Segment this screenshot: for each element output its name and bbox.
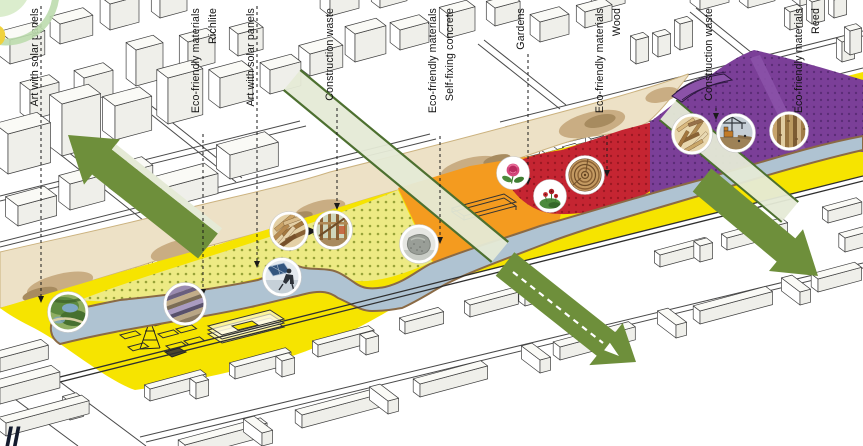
svg-text:Construction waste: Construction waste bbox=[703, 8, 715, 101]
masterplan-canvas: Art with solar panels Eco-friendly mater… bbox=[0, 0, 863, 446]
watermark-mark: ll bbox=[5, 422, 21, 446]
svg-text:Gardens: Gardens bbox=[515, 8, 527, 50]
svg-text:Art with solar panels: Art with solar panels bbox=[29, 8, 41, 107]
inset-timber-frame bbox=[313, 210, 353, 250]
svg-text:Self-fixing concrete: Self-fixing concrete bbox=[444, 8, 456, 101]
inset-person-solar-panel bbox=[262, 257, 302, 297]
inset-park-landscape bbox=[47, 292, 89, 333]
svg-text:Construction waste: Construction waste bbox=[324, 8, 336, 101]
svg-text:Art with solar panels: Art with solar panels bbox=[245, 8, 257, 107]
inset-wood-scraps bbox=[269, 211, 309, 251]
callout-construction-waste-1: Construction waste bbox=[324, 8, 336, 101]
callout-gardens: Gardens bbox=[515, 8, 527, 50]
masterplan-diagram: Art with solar panels Eco-friendly mater… bbox=[0, 0, 863, 446]
svg-text:Eco-friendly materials: Eco-friendly materials bbox=[594, 8, 606, 113]
inset-garden-flowers bbox=[534, 180, 567, 213]
callout-construction-waste-2: Construction waste bbox=[703, 8, 715, 101]
svg-text:Richlite: Richlite bbox=[207, 8, 219, 44]
inset-self-fixing-concrete bbox=[399, 224, 439, 264]
callout-art-with-solar-panels-1: Art with solar panels bbox=[29, 8, 41, 107]
inset-construction-site bbox=[716, 113, 756, 153]
inset-rose bbox=[497, 157, 530, 190]
callout-art-with-solar-panels-2: Art with solar panels bbox=[245, 8, 257, 107]
svg-text:Eco-friendly materials: Eco-friendly materials bbox=[793, 8, 805, 113]
inset-wood-chips bbox=[672, 114, 713, 155]
inset-reed bbox=[769, 111, 809, 151]
svg-text:Eco-friendly materials: Eco-friendly materials bbox=[427, 8, 439, 113]
inset-wood-log bbox=[565, 155, 605, 195]
svg-text:Eco-friendly materials: Eco-friendly materials bbox=[190, 8, 202, 113]
svg-text:Reed: Reed bbox=[810, 8, 822, 34]
svg-text:Wood: Wood bbox=[611, 8, 623, 36]
